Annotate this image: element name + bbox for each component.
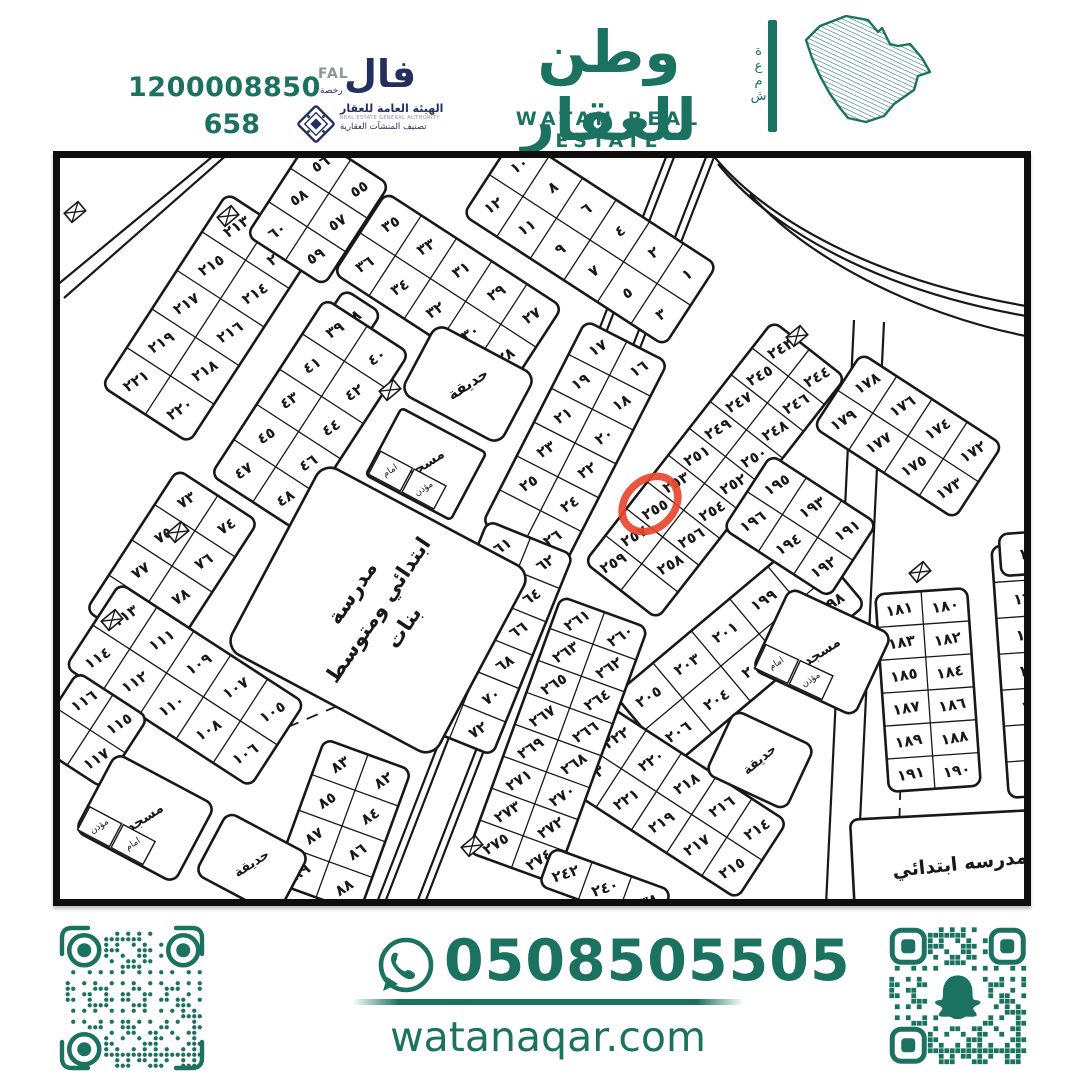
brand-divider-bar [768, 20, 777, 132]
authority-subtitle: تصنيف المنشآت العقارية [340, 122, 450, 133]
brand-vertical-text: شمعة [746, 16, 766, 132]
plot-block: ١٥١ [999, 530, 1024, 576]
real-estate-authority-logo: الهيئة العامة للعقار REAL ESTATE GENERAL… [296, 102, 426, 152]
map-area: مدرسه ابتدائي [850, 808, 1024, 899]
qr-code-left [58, 924, 208, 1074]
whatsapp-icon [374, 934, 438, 998]
plot-block: ١٨١١٨٠١٨٣١٨٢١٨٥١٨٤١٨٧١٨٦١٨٩١٨٨١٩١١٩٠ [875, 588, 981, 792]
utility-kiosk-icon [909, 562, 931, 583]
phone-number: 0508505505 [444, 928, 744, 994]
classification-number: 658 [160, 109, 260, 140]
saudi-arabia-map-icon [786, 10, 938, 134]
plot-block: ٢٤٢٢٤٠٢٣٨ [539, 848, 671, 899]
footer-divider [352, 999, 744, 1005]
brand-name-english: WATAN REAL ESTATE [468, 108, 750, 152]
fal-logo-ar: فال [344, 52, 416, 96]
snapchat-qr-code [882, 920, 1034, 1072]
plot-block: ١٥٩١٦١١٦٣١٦٥١٦٧١٦٩١٧١ [991, 542, 1024, 798]
authority-title-en: REAL ESTATE GENERAL AUTHORITY [340, 115, 450, 122]
fal-logo-subtitle: رخصة [320, 86, 343, 96]
utility-kiosk-icon [64, 202, 86, 223]
plot-map-frame: ٢٢١٢١٩٢١٧٢١٥٢١٣٢٢٠٢١٨٢١٦٢١٤٢١٢٦٠٥٨٥٦٥٩٥٧… [53, 151, 1031, 906]
website-url: watanaqar.com [352, 1013, 744, 1061]
authority-title: الهيئة العامة للعقار [340, 102, 450, 115]
real-estate-flyer: 1200008850 FAL فال رخصة 658 الهيئة العام… [0, 0, 1080, 1080]
fal-license-number: 1200008850 [128, 72, 312, 103]
map-area: حديقة [195, 812, 309, 899]
street-line [712, 158, 1024, 306]
cadastral-plot-map: ٢٢١٢١٩٢١٧٢١٥٢١٣٢٢٠٢١٨٢١٦٢١٤٢١٢٦٠٥٨٥٦٥٩٥٧… [60, 158, 1024, 899]
plot-number: ١٦١ [1012, 587, 1024, 609]
authority-diamond-icon [296, 102, 336, 146]
street-line [750, 194, 1024, 336]
plot-number: ١٦٣ [1015, 623, 1024, 645]
street-line [718, 164, 1024, 316]
